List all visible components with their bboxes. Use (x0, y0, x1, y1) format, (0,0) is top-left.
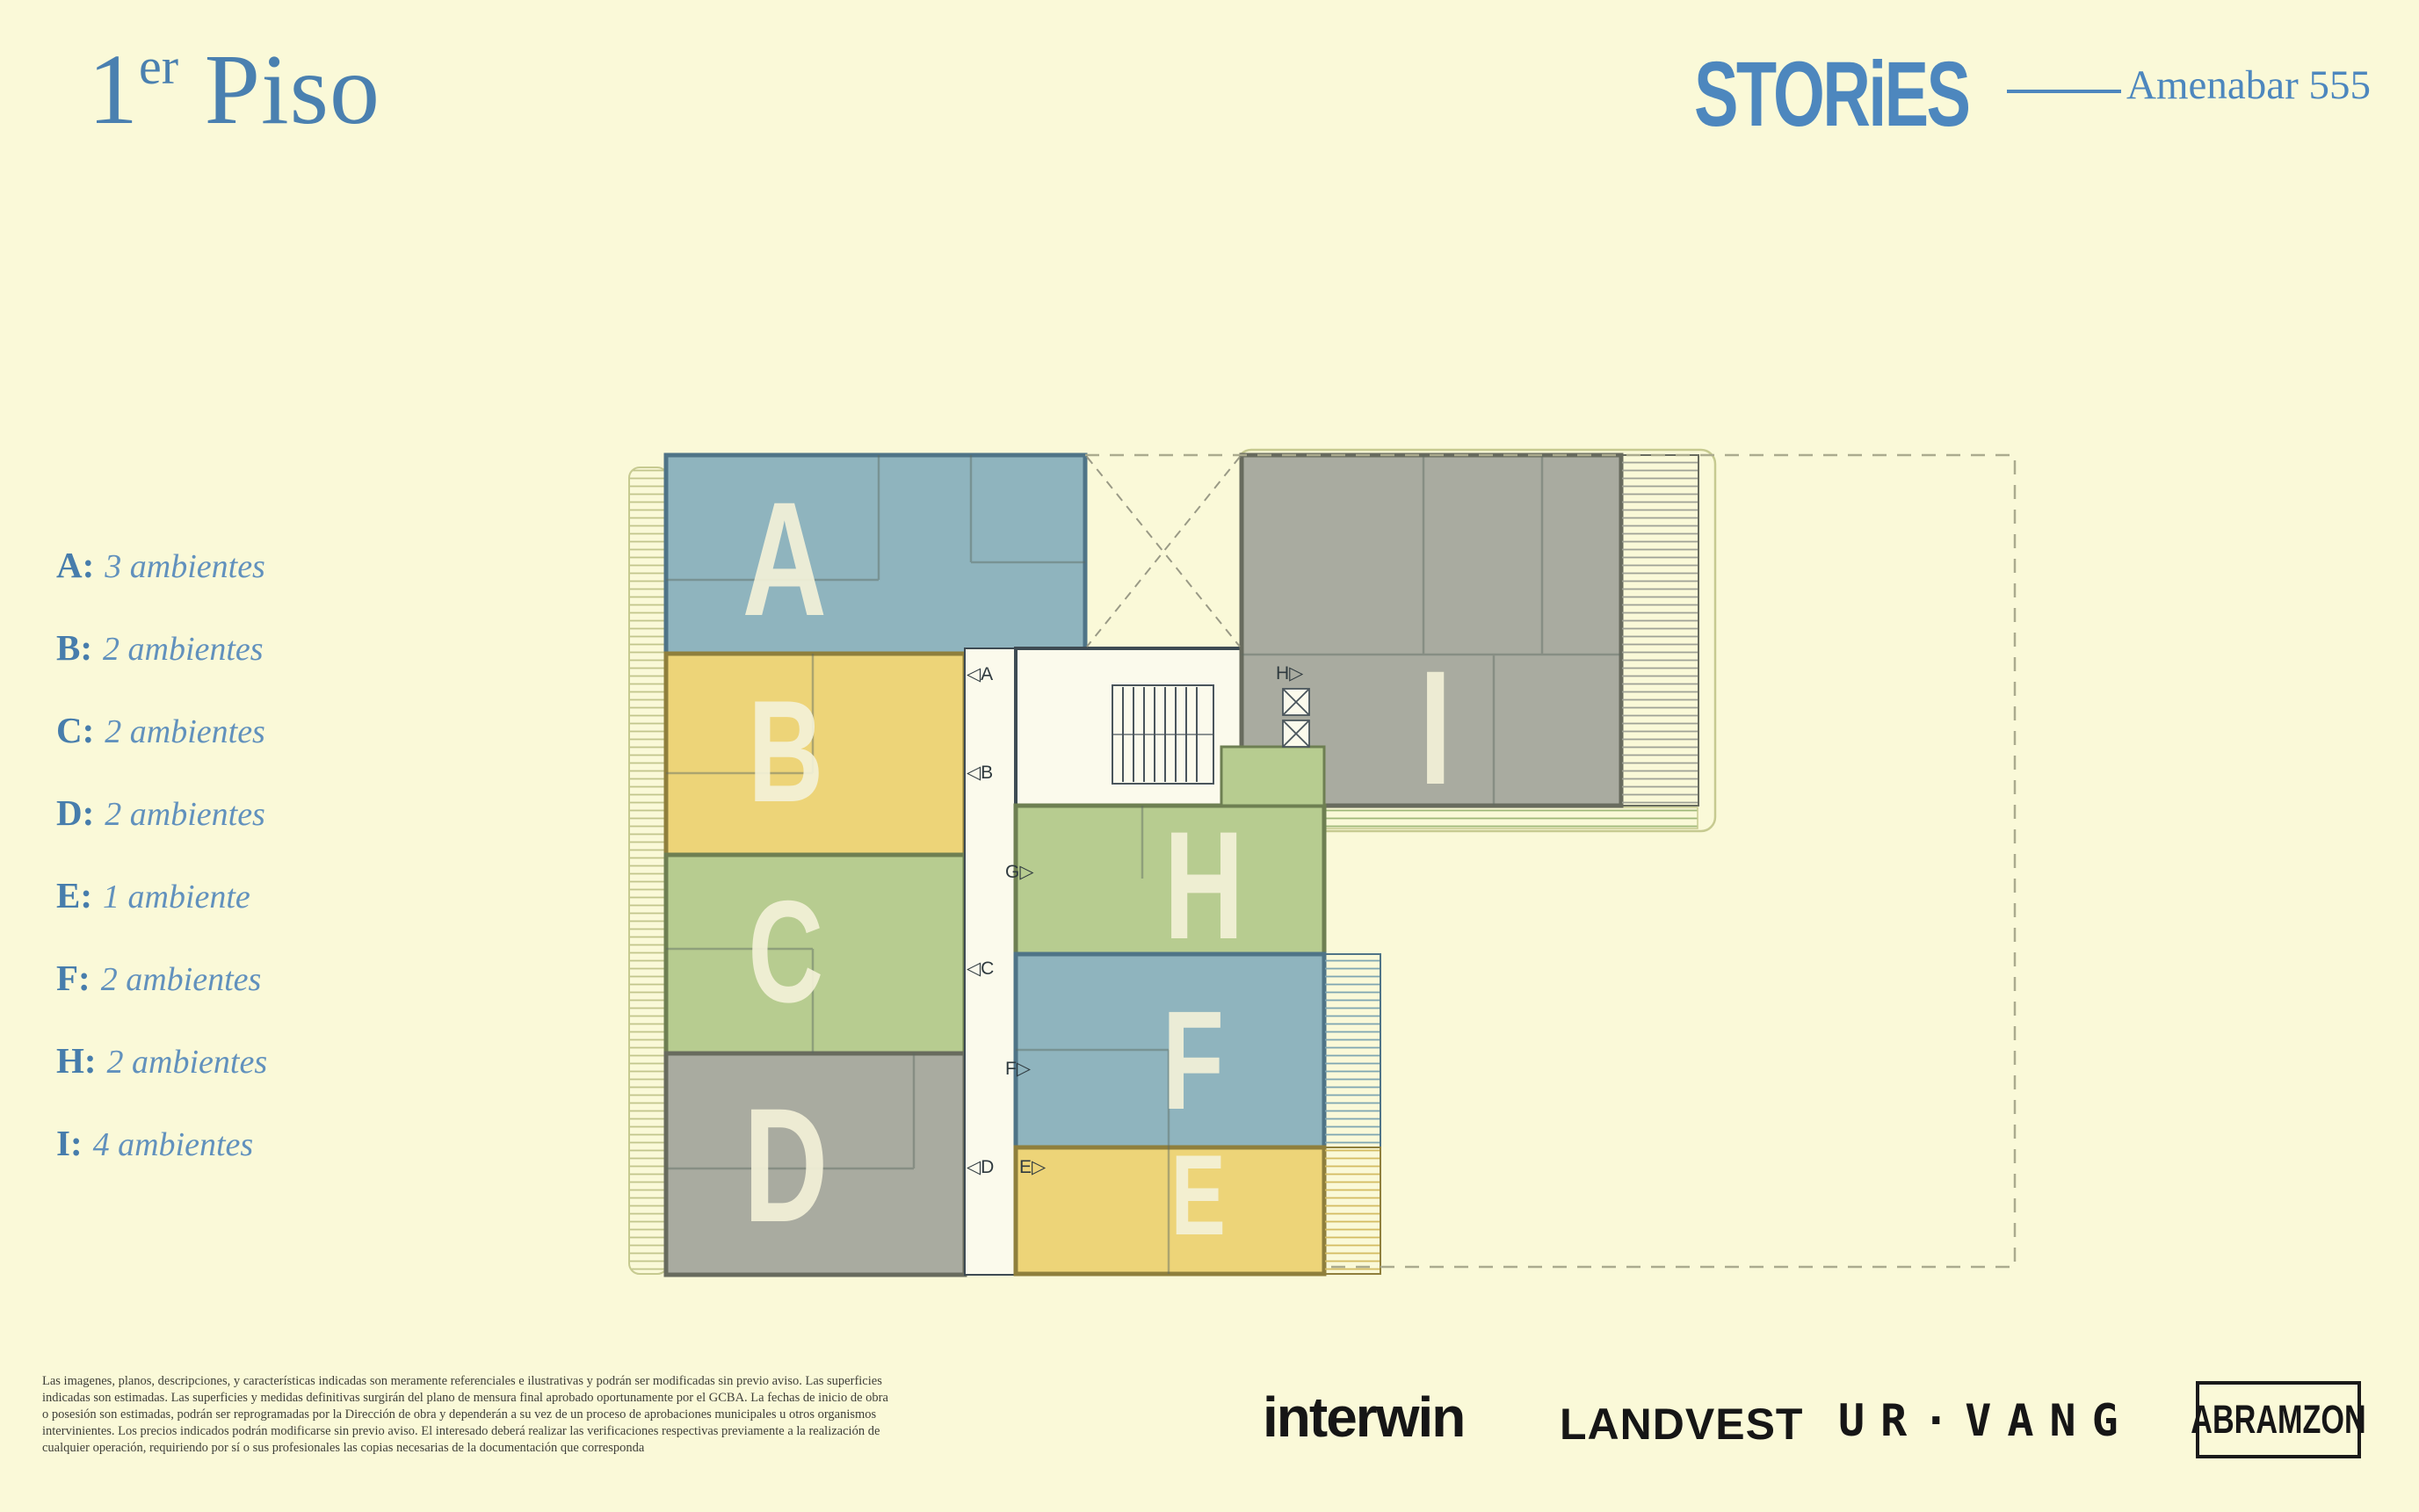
entry-label-g: G▷ (1005, 862, 1034, 882)
logo-urvang: UR·VANG (1838, 1395, 2134, 1446)
legal-disclaimer: Las imagenes, planos, descripciones, y c… (42, 1373, 888, 1457)
disclaimer-line: cualquier operación, requiriendo por sí … (42, 1440, 888, 1457)
disclaimer-line: o posesión son estimadas, podrán ser rep… (42, 1407, 888, 1423)
floor-plan: A B C D I H F E ◁A ◁B G▷ ◁C F▷ ◁D E▷ H▷ (0, 0, 2419, 1512)
disclaimer-line: Las imagenes, planos, descripciones, y c… (42, 1373, 888, 1390)
unit-d-letter: D (743, 1075, 828, 1257)
entry-label-e: E▷ (1019, 1157, 1047, 1177)
disclaimer-line: intervinientes. Los precios indicados po… (42, 1423, 888, 1440)
entry-label-c: ◁C (967, 959, 994, 979)
unit-a-shape (666, 455, 1085, 654)
entry-label-b: ◁B (967, 763, 993, 783)
staircase (1112, 685, 1213, 784)
page: 1er Piso STORiES Amenabar 555 A:3 ambien… (0, 0, 2419, 1512)
logo-interwin: interwin (1263, 1385, 1464, 1450)
left-terrace-deck (629, 467, 668, 1274)
unit-f-terrace-deck (1324, 954, 1380, 1147)
entry-label-a: ◁A (967, 664, 993, 684)
entry-label-f: F▷ (1005, 1059, 1032, 1079)
logo-abramzon-text: ABRAMZON (2191, 1397, 2365, 1443)
unit-h-letter: H (1164, 800, 1244, 972)
unit-h-extension (1221, 747, 1324, 806)
unit-e-letter: E (1170, 1132, 1225, 1260)
unit-i-letter: I (1419, 638, 1452, 820)
entry-label-h: H▷ (1276, 663, 1304, 684)
unit-e-terrace-deck (1324, 1147, 1380, 1274)
entry-label-d: ◁D (967, 1157, 994, 1177)
unit-c-letter: C (748, 872, 823, 1033)
unit-e-shape (1016, 1147, 1324, 1274)
disclaimer-line: indicadas son estimadas. Las superficies… (42, 1390, 888, 1407)
unit-a-letter: A (742, 469, 827, 651)
unit-i-terrace-deck (1621, 455, 1698, 806)
unit-b-letter: B (748, 671, 823, 833)
logo-abramzon: ABRAMZON (2196, 1381, 2361, 1458)
logo-landvest: LANDVEST (1560, 1399, 1803, 1450)
unit-f-letter: F (1162, 981, 1224, 1139)
